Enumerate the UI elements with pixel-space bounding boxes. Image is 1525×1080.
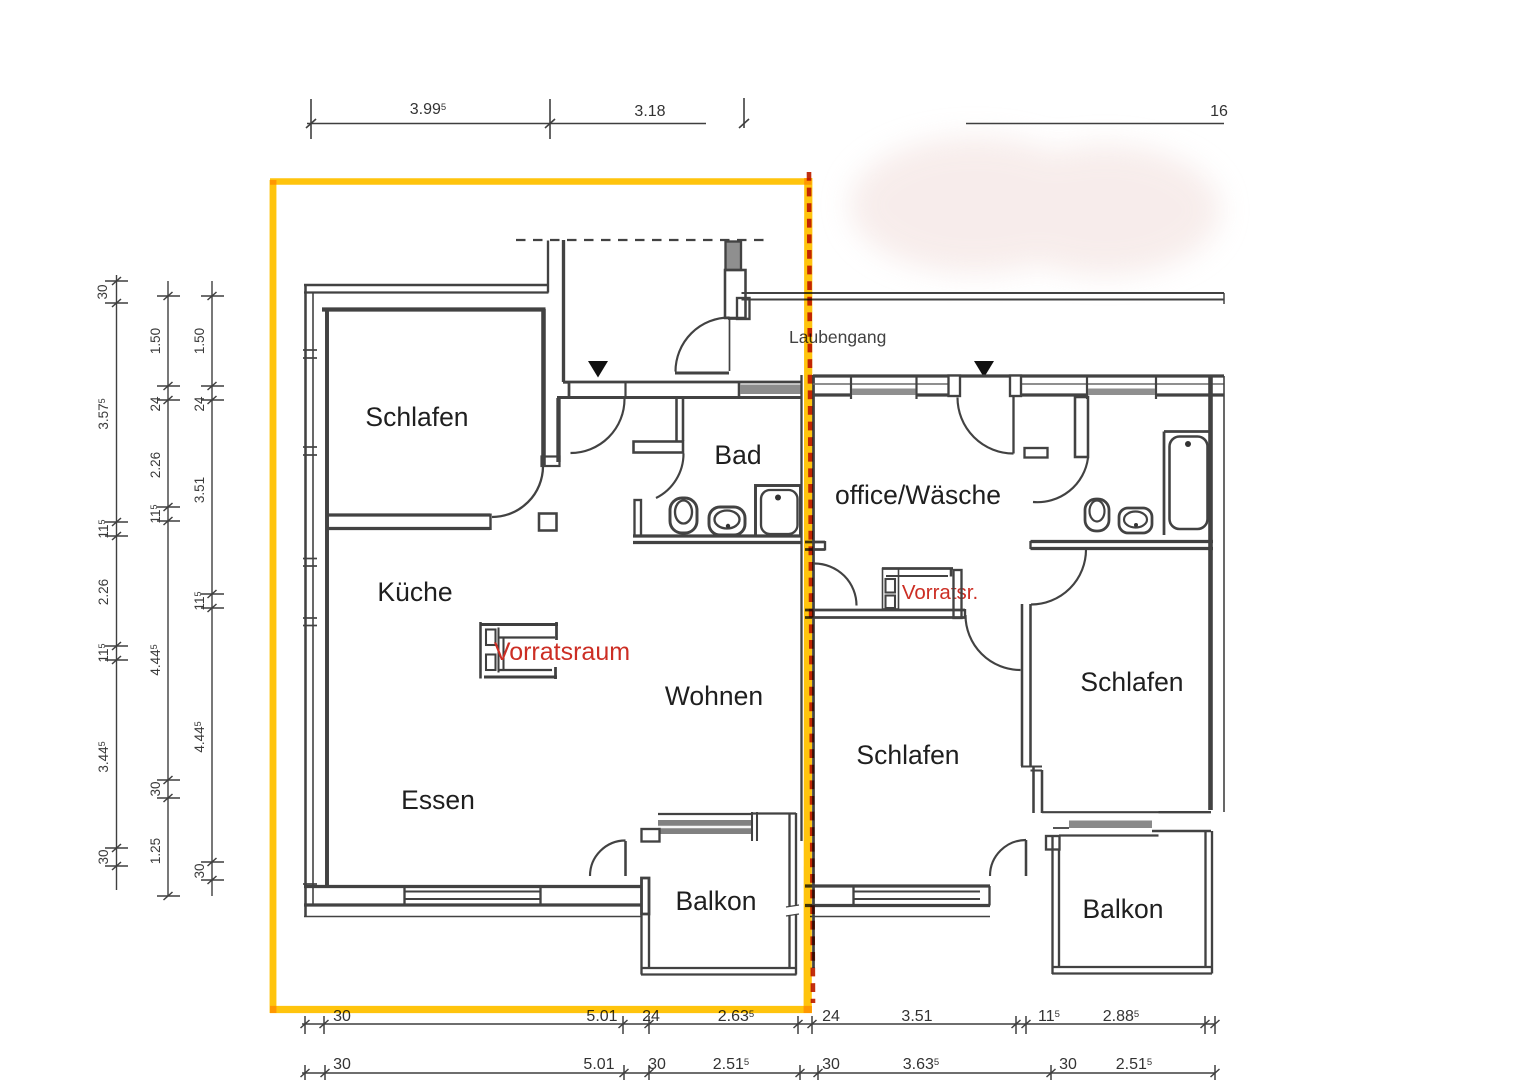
svg-text:24: 24 [192, 396, 207, 412]
svg-text:Bad: Bad [714, 440, 761, 470]
svg-text:24: 24 [148, 396, 163, 412]
svg-text:Küche: Küche [377, 577, 452, 607]
svg-text:Wohnen: Wohnen [665, 681, 763, 711]
svg-text:5.01: 5.01 [583, 1056, 614, 1073]
svg-text:3.18: 3.18 [634, 103, 665, 120]
svg-text:1.25: 1.25 [148, 838, 163, 864]
svg-text:2.26: 2.26 [148, 452, 163, 478]
svg-text:Balkon: Balkon [675, 886, 756, 916]
svg-text:30: 30 [822, 1056, 840, 1073]
svg-text:30: 30 [148, 781, 163, 796]
svg-text:30: 30 [648, 1056, 666, 1073]
svg-text:30: 30 [95, 284, 110, 299]
svg-text:30: 30 [96, 849, 111, 864]
svg-text:Vorratsr.: Vorratsr. [902, 581, 978, 604]
svg-text:2.515: 2.515 [713, 1056, 749, 1073]
svg-text:16: 16 [1210, 103, 1228, 120]
svg-text:24: 24 [822, 1008, 840, 1025]
svg-text:30: 30 [333, 1056, 351, 1073]
svg-text:Schlafen: Schlafen [365, 402, 468, 432]
svg-text:3.51: 3.51 [192, 477, 207, 503]
svg-text:1.50: 1.50 [192, 328, 207, 354]
svg-text:Schlafen: Schlafen [856, 740, 959, 770]
svg-text:2.26: 2.26 [96, 579, 111, 605]
svg-text:Vorratsraum: Vorratsraum [494, 638, 630, 666]
svg-text:Laubengang: Laubengang [789, 327, 886, 347]
svg-text:30: 30 [1059, 1056, 1077, 1073]
svg-text:Balkon: Balkon [1082, 894, 1163, 924]
svg-text:2.885: 2.885 [1103, 1008, 1139, 1025]
svg-text:3.51: 3.51 [901, 1008, 932, 1025]
svg-text:30: 30 [192, 863, 207, 878]
svg-text:2.515: 2.515 [1116, 1056, 1152, 1073]
svg-text:3.995: 3.995 [410, 101, 446, 118]
svg-text:Schlafen: Schlafen [1080, 667, 1183, 697]
svg-text:office/Wäsche: office/Wäsche [835, 480, 1001, 510]
svg-text:1.50: 1.50 [148, 328, 163, 354]
svg-text:3.635: 3.635 [903, 1056, 939, 1073]
svg-text:Essen: Essen [401, 785, 475, 815]
